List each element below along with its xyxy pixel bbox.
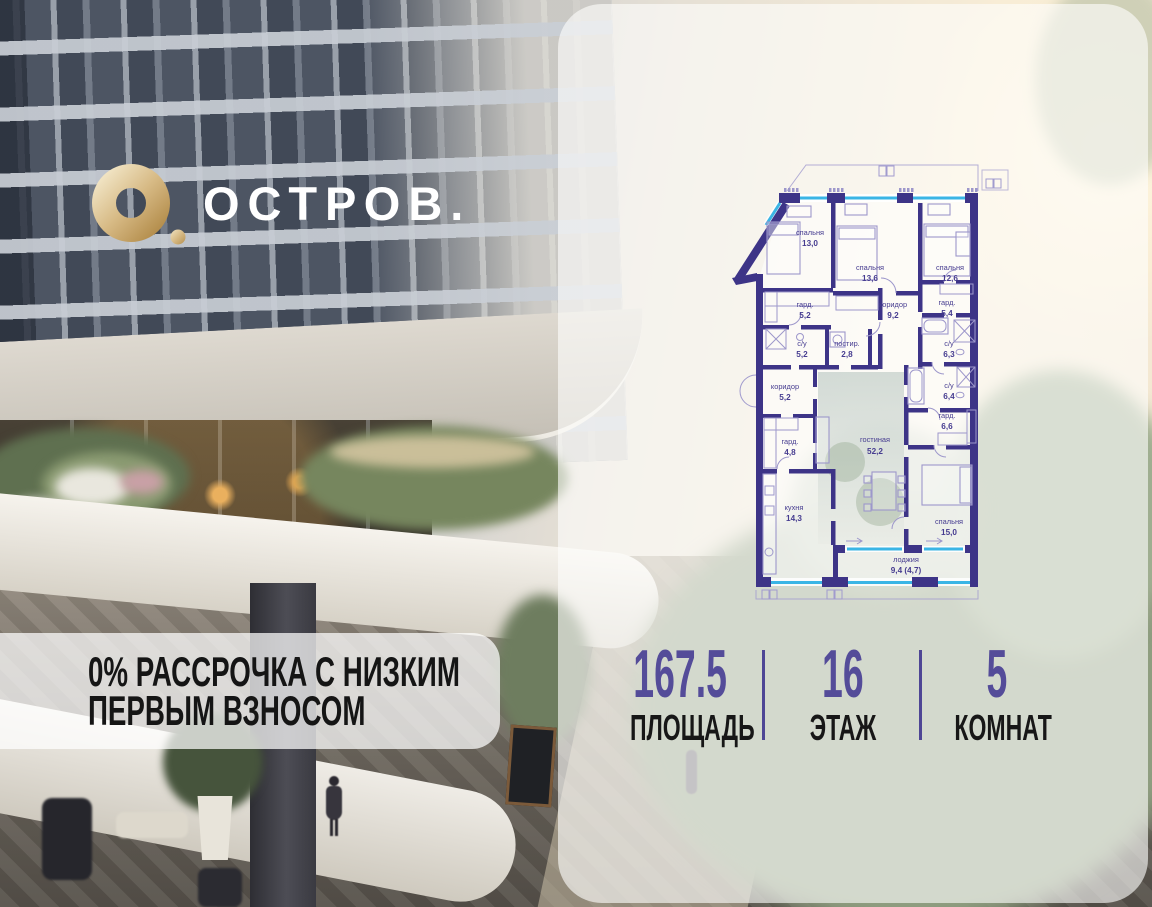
room-wardrobe3-name: гард. [939, 411, 956, 420]
brand-name: ОСТРОВ. [203, 180, 471, 227]
room-laundry-area: 2,8 [841, 350, 853, 359]
room-bedroom4-name: спальня [935, 517, 963, 526]
room-wardrobe2-name: гард. [939, 298, 956, 307]
area-label: ПЛОЩАДЬ [630, 711, 755, 745]
promo-line1: 0% РАССРОЧКА С НИЗКИМ [88, 652, 460, 691]
room-loggia-area: 9,4 (4,7) [891, 566, 922, 575]
room-bedroom2-area: 13,6 [862, 274, 878, 283]
stat-area: 167.5 ПЛОЩАДЬ [595, 644, 765, 745]
room-corridor2-name: коридор [771, 382, 799, 391]
room-wardrobe4-name: гард. [782, 437, 799, 446]
room-living-name: гостиная [860, 435, 890, 444]
floorplan: спальня 13,0 спальня 13,6 спальня 12,6 г… [730, 162, 1012, 602]
room-corridor1-name: коридор [879, 300, 907, 309]
room-bedroom1-name: спальня [796, 228, 824, 237]
area-value: 167.5 [633, 644, 727, 704]
room-wardrobe1-name: гард. [797, 300, 814, 309]
stat-floor: 16 ЭТАЖ [770, 644, 915, 745]
background-cafe-table [116, 812, 188, 838]
brand-logo-mark-icon [92, 163, 194, 247]
vent-ticks [784, 188, 978, 192]
room-bedroom3-area: 12,6 [942, 274, 958, 283]
room-loggia-name: лоджия [893, 555, 919, 564]
room-kitchen-name: кухня [785, 503, 804, 512]
room-bedroom3-name: спальня [936, 263, 964, 272]
room-bath1-name: с/у [797, 339, 807, 348]
room-bath3-area: 6,4 [943, 392, 955, 401]
rooms-label: КОМНАТ [954, 711, 1051, 745]
room-living-area: 52,2 [867, 447, 883, 456]
room-laundry-name: постир. [834, 339, 860, 348]
room-bedroom1-area: 13,0 [802, 239, 818, 248]
room-bath1-area: 5,2 [796, 350, 808, 359]
stat-rooms: 5 КОМНАТ [927, 644, 1067, 745]
entry-door-arc [740, 375, 756, 407]
person-silhouette [326, 776, 342, 838]
room-bath2-name: с/у [944, 339, 954, 348]
room-corridor1-area: 9,2 [887, 311, 899, 320]
stats-divider [762, 650, 765, 740]
room-kitchen-area: 14,3 [786, 514, 802, 523]
poster-root: ОСТРОВ. [0, 0, 1152, 907]
room-wardrobe3-area: 6,6 [941, 422, 953, 431]
room-bath2-area: 6,3 [943, 350, 955, 359]
stats-divider [919, 650, 922, 740]
room-wardrobe1-area: 5,2 [799, 311, 811, 320]
background-cafe-chair [42, 798, 92, 880]
room-bedroom2-name: спальня [856, 263, 884, 272]
promo-line2: ПЕРВЫМ ВЗНОСОМ [88, 691, 365, 730]
background-chalkboard [505, 724, 556, 807]
room-bedroom4-area: 15,0 [941, 528, 957, 537]
room-bath3-name: с/у [944, 381, 954, 390]
room-wardrobe4-area: 4,8 [784, 448, 796, 457]
floor-label: ЭТАЖ [809, 711, 875, 745]
brand-logo: ОСТРОВ. [92, 163, 512, 249]
room-corridor2-area: 5,2 [779, 393, 791, 402]
floor-value: 16 [822, 644, 864, 704]
room-wardrobe2-area: 5,4 [941, 309, 953, 318]
rooms-value: 5 [987, 644, 1008, 704]
promo-banner: 0% РАССРОЧКА С НИЗКИМ ПЕРВЫМ ВЗНОСОМ [0, 633, 500, 749]
